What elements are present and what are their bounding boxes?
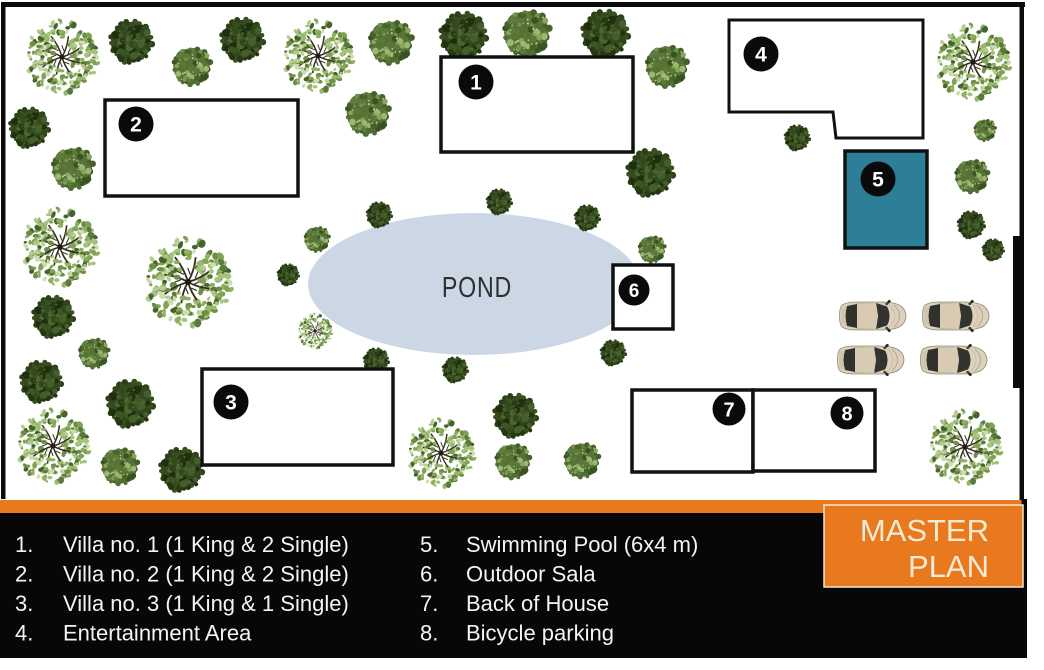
svg-text:MASTER: MASTER bbox=[860, 513, 989, 548]
svg-text:Villa no. 3 (1 King & 1 Single: Villa no. 3 (1 King & 1 Single) bbox=[63, 591, 349, 616]
svg-text:4.: 4. bbox=[15, 621, 33, 646]
svg-text:7.: 7. bbox=[420, 591, 438, 616]
svg-text:Villa no. 2 (1 King & 2 Single: Villa no. 2 (1 King & 2 Single) bbox=[63, 562, 349, 587]
svg-text:6: 6 bbox=[629, 281, 640, 302]
svg-text:8: 8 bbox=[841, 404, 852, 426]
svg-text:Swimming Pool (6x4 m): Swimming Pool (6x4 m) bbox=[466, 532, 698, 557]
svg-text:2.: 2. bbox=[15, 562, 33, 587]
svg-text:4: 4 bbox=[755, 44, 767, 67]
svg-text:Entertainment Area: Entertainment Area bbox=[63, 621, 252, 646]
svg-text:PLAN: PLAN bbox=[908, 549, 989, 584]
svg-text:3.: 3. bbox=[15, 591, 33, 616]
svg-text:Back of House: Back of House bbox=[466, 591, 609, 616]
svg-text:8.: 8. bbox=[420, 621, 438, 646]
svg-text:7: 7 bbox=[723, 400, 734, 422]
svg-text:5: 5 bbox=[872, 169, 884, 192]
svg-text:5.: 5. bbox=[420, 532, 438, 557]
svg-text:1.: 1. bbox=[15, 532, 33, 557]
svg-text:Villa no. 1 (1 King & 2 Single: Villa no. 1 (1 King & 2 Single) bbox=[63, 532, 349, 557]
svg-text:2: 2 bbox=[130, 114, 142, 137]
svg-text:Bicycle parking: Bicycle parking bbox=[466, 621, 614, 646]
svg-text:3: 3 bbox=[225, 392, 237, 415]
svg-text:POND: POND bbox=[442, 270, 512, 303]
svg-text:Outdoor Sala: Outdoor Sala bbox=[466, 562, 596, 587]
svg-text:6.: 6. bbox=[420, 562, 438, 587]
svg-text:1: 1 bbox=[470, 72, 482, 95]
